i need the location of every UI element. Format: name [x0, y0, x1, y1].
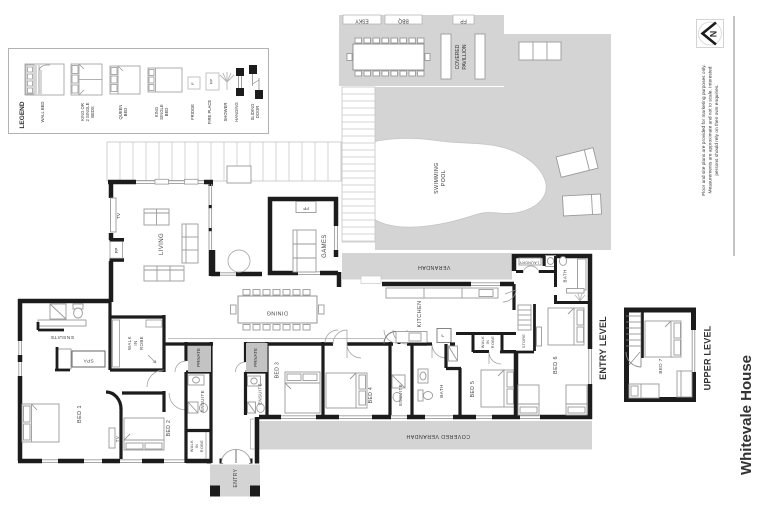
svg-text:BED 1: BED 1: [77, 405, 83, 423]
svg-text:Measurements are approximate a: Measurements are approximate and not to …: [708, 66, 714, 193]
svg-text:IN: IN: [133, 340, 138, 345]
svg-text:BED 3: BED 3: [275, 362, 281, 378]
svg-text:COVERED VERANDAH: COVERED VERANDAH: [406, 433, 470, 439]
svg-text:LIVING: LIVING: [159, 233, 165, 255]
svg-text:BED 2: BED 2: [166, 420, 172, 436]
svg-text:WALK: WALK: [481, 336, 485, 348]
svg-text:WALK: WALK: [190, 440, 194, 452]
svg-text:ROBE: ROBE: [200, 440, 204, 452]
svg-text:BED 6: BED 6: [553, 356, 559, 374]
svg-text:ENSUITE: ENSUITE: [200, 390, 205, 412]
svg-text:ENSUITE: ENSUITE: [258, 383, 263, 405]
svg-text:ESKY: ESKY: [355, 18, 369, 24]
svg-text:SPA: SPA: [83, 358, 94, 364]
svg-text:TV: TV: [115, 436, 120, 442]
svg-text:IN: IN: [195, 444, 199, 449]
svg-text:persons should rely on their o: persons should rely on their own enquiri…: [714, 84, 720, 175]
svg-text:BED 4: BED 4: [368, 387, 374, 403]
svg-text:WALK: WALK: [127, 336, 132, 350]
svg-text:FP: FP: [460, 18, 467, 24]
svg-text:UPPER LEVEL: UPPER LEVEL: [703, 325, 713, 390]
svg-text:IN: IN: [486, 340, 490, 345]
svg-text:FRIDGE: FRIDGE: [190, 104, 195, 120]
svg-text:Floor and site plans are provi: Floor and site plans are provided for ma…: [701, 64, 707, 195]
svg-text:ENSUITE: ENSUITE: [50, 334, 74, 340]
svg-text:STORE: STORE: [522, 334, 526, 349]
svg-text:LEGEND: LEGEND: [19, 101, 26, 128]
svg-text:BED 5: BED 5: [470, 381, 476, 397]
svg-text:ROBE: ROBE: [491, 336, 495, 348]
svg-text:TV: TV: [116, 212, 122, 219]
svg-text:HANGING: HANGING: [234, 102, 239, 122]
svg-text:GAMES: GAMES: [322, 234, 328, 258]
svg-text:LAUNDRY: LAUNDRY: [519, 261, 539, 265]
svg-text:DOOR: DOOR: [255, 106, 260, 119]
svg-text:PAVILLION: PAVILLION: [462, 44, 468, 69]
svg-text:FIRE PLACE: FIRE PLACE: [207, 100, 212, 125]
svg-text:BED: BED: [164, 108, 169, 117]
svg-text:VERANDAH: VERANDAH: [418, 264, 451, 270]
svg-text:BED 7: BED 7: [658, 358, 663, 373]
svg-text:PRIVATE: PRIVATE: [253, 348, 258, 367]
svg-text:POOL: POOL: [441, 170, 447, 186]
svg-text:FP: FP: [114, 248, 119, 254]
svg-text:BATH: BATH: [563, 270, 568, 283]
svg-text:ENTRY LEVEL: ENTRY LEVEL: [598, 316, 608, 380]
svg-text:WALL BED: WALL BED: [40, 102, 45, 123]
svg-text:N: N: [708, 31, 718, 38]
svg-text:BED: BED: [123, 108, 128, 117]
svg-text:DINING: DINING: [266, 310, 288, 316]
svg-text:BATH: BATH: [439, 384, 444, 398]
svg-text:ROBE: ROBE: [139, 336, 144, 350]
svg-text:ENSUITE: ENSUITE: [398, 384, 403, 406]
svg-text:BEDS: BEDS: [90, 106, 95, 118]
svg-text:SWIMMING: SWIMMING: [434, 162, 440, 194]
svg-text:FP: FP: [209, 79, 214, 84]
svg-text:FP: FP: [303, 206, 309, 211]
svg-text:PRIVATE: PRIVATE: [196, 348, 201, 367]
svg-text:Whitevale House: Whitevale House: [738, 355, 755, 475]
svg-text:SHOWER: SHOWER: [223, 103, 228, 122]
svg-text:KITCHEN: KITCHEN: [417, 301, 423, 328]
svg-text:BBQ: BBQ: [398, 18, 409, 24]
svg-text:ENTRY: ENTRY: [233, 468, 239, 487]
svg-text:COVERED: COVERED: [455, 44, 461, 69]
